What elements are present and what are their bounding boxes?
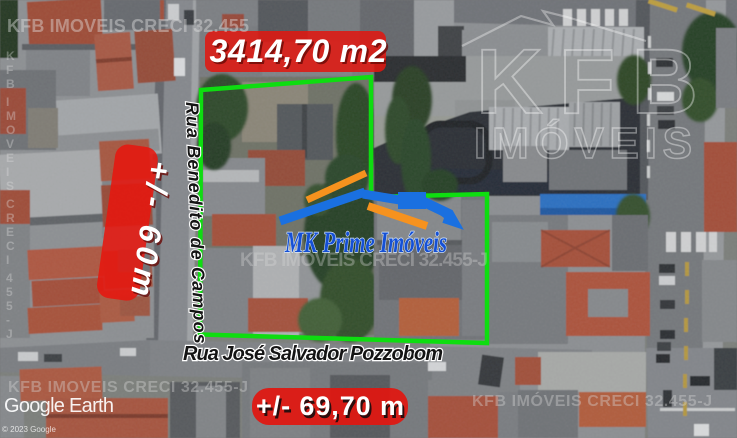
svg-text:3414,70 m2: 3414,70 m2 xyxy=(210,33,387,69)
svg-text:© 2023 Google: © 2023 Google xyxy=(2,425,56,434)
svg-text:KFB IMOVEIS CRECI 32.455: KFB IMOVEIS CRECI 32.455 xyxy=(7,16,249,36)
svg-text:Rua José Salvador Pozzobom: Rua José Salvador Pozzobom xyxy=(183,343,443,365)
svg-text:Google Earth: Google Earth xyxy=(4,395,114,417)
svg-text:KFB IMÓVEIS CRECI 32.455-J: KFB IMÓVEIS CRECI 32.455-J xyxy=(472,391,712,410)
svg-text:KFB: KFB xyxy=(476,31,698,133)
svg-text:KFB IMOVEIS CRECI 32.455-J: KFB IMOVEIS CRECI 32.455-J xyxy=(8,379,248,396)
svg-text:+/- 69,70 m: +/- 69,70 m xyxy=(256,391,404,421)
svg-text:MK Prime Imóveis: MK Prime Imóveis xyxy=(284,226,447,259)
